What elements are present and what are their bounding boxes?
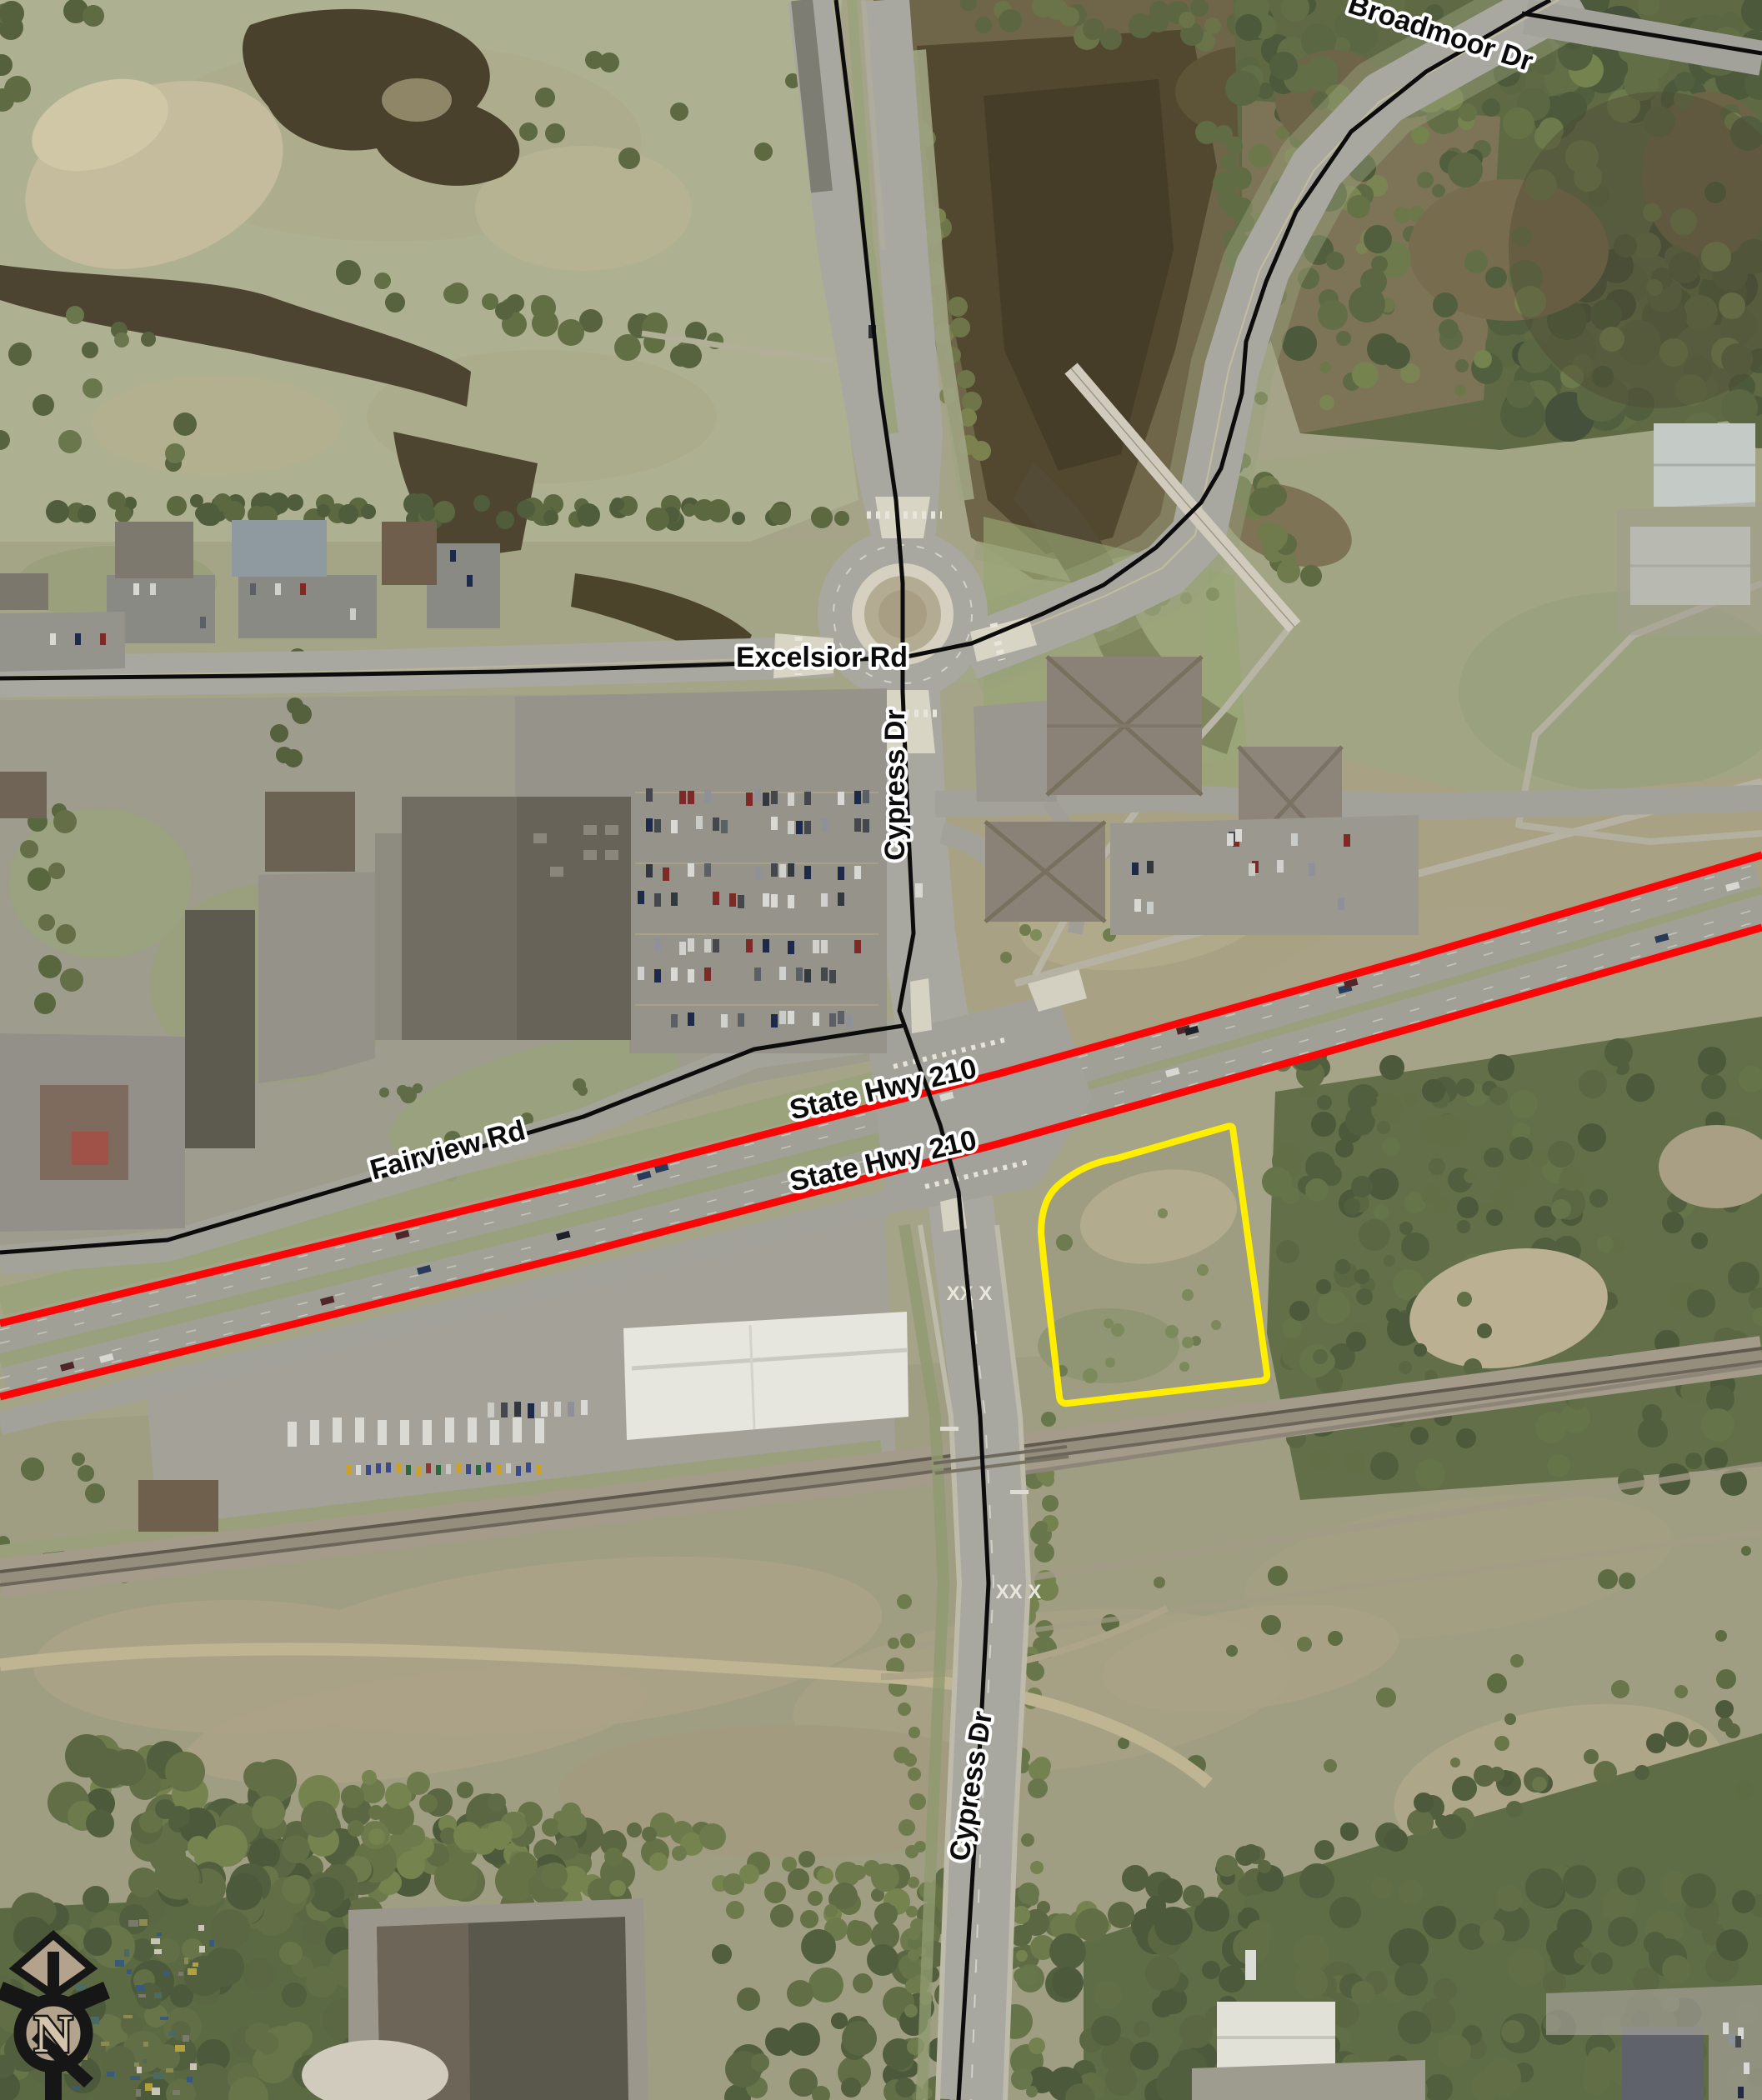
svg-text:Excelsior Rd: Excelsior Rd: [736, 642, 908, 673]
svg-text:N: N: [34, 2004, 73, 2063]
svg-text:Cypress Dr: Cypress Dr: [879, 709, 911, 860]
svg-text:XX X: XX X: [996, 1581, 1042, 1603]
